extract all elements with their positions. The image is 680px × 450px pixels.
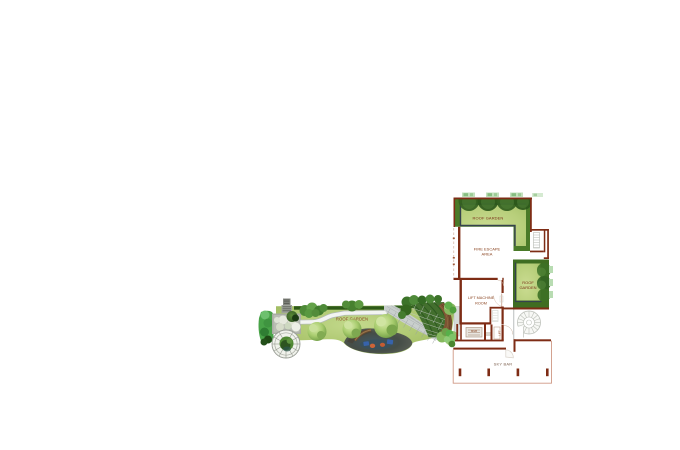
- svg-text:ROOM: ROOM: [475, 302, 487, 306]
- svg-text:LIFT MACHINE: LIFT MACHINE: [468, 296, 495, 300]
- svg-text:LIFT: LIFT: [498, 330, 502, 336]
- svg-text:ROOF GARDEN: ROOF GARDEN: [473, 216, 504, 221]
- svg-text:MGB: MGB: [471, 329, 477, 333]
- svg-text:SKY BAR: SKY BAR: [494, 362, 513, 367]
- svg-text:AREA: AREA: [482, 252, 493, 257]
- svg-text:GARDEN: GARDEN: [519, 285, 536, 290]
